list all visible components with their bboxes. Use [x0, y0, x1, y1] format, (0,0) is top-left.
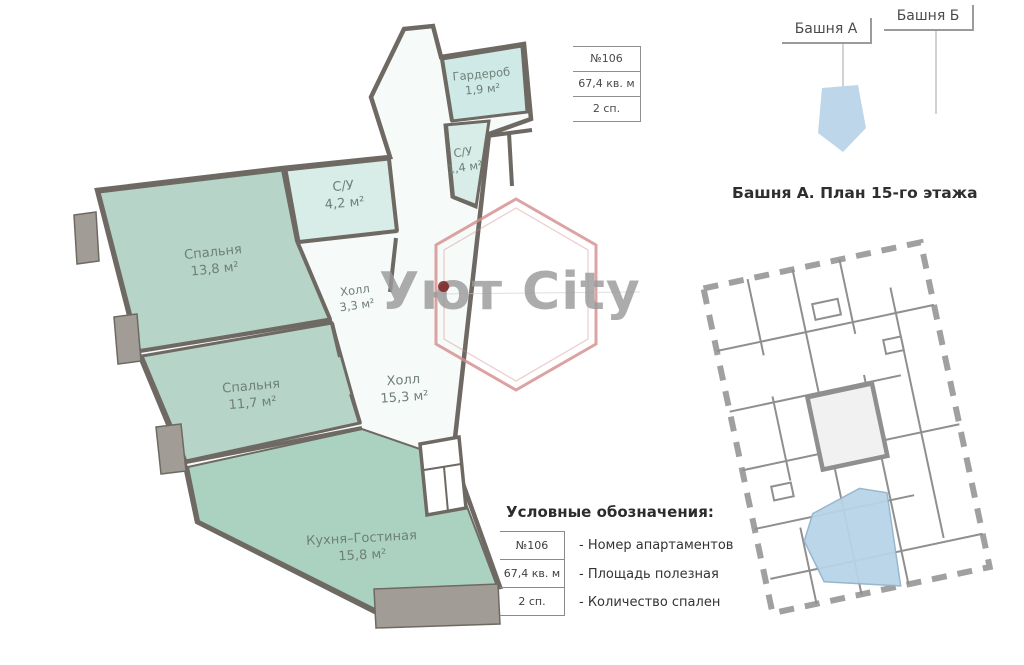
utility-shaft [420, 437, 466, 515]
tower-a-location-marker [818, 85, 866, 152]
legend-key-number: №106 [500, 531, 565, 560]
legend-key-bedrooms: 2 сп. [500, 588, 565, 616]
tab-tower-b[interactable]: Башня Б [884, 5, 974, 31]
room-bathroom-large [286, 159, 397, 242]
legend: Условные обозначения: №106 - Номер апарт… [500, 503, 733, 616]
legend-desc-number: - Номер апартаментов [579, 538, 733, 553]
apartment-number: №106 [573, 46, 640, 72]
tower-plan-title: Башня А. План 15-го этажа [732, 184, 978, 202]
legend-desc-bedrooms: - Количество спален [579, 595, 720, 610]
legend-row-bedrooms: 2 сп. - Количество спален [500, 588, 733, 616]
legend-key-area: 67,4 кв. м [500, 560, 565, 588]
apartment-area: 67,4 кв. м [573, 72, 640, 97]
scanned-floorplan-page: Гардероб 1,9 м² С/У 1,4 м² С/У 4,2 м² Сп… [0, 0, 1024, 665]
legend-row-number: №106 - Номер апартаментов [500, 531, 733, 560]
room-wardrobe [442, 46, 527, 121]
apartment-info-box: №106 67,4 кв. м 2 сп. [573, 46, 641, 122]
legend-desc-area: - Площадь полезная [579, 567, 719, 582]
legend-row-area: 67,4 кв. м - Площадь полезная [500, 560, 733, 588]
legend-title: Условные обозначения: [506, 503, 733, 521]
tab-tower-a[interactable]: Башня А [782, 18, 872, 44]
tower-a-floorplan-thumbnail [704, 242, 990, 613]
apartment-bedrooms: 2 сп. [573, 97, 640, 122]
